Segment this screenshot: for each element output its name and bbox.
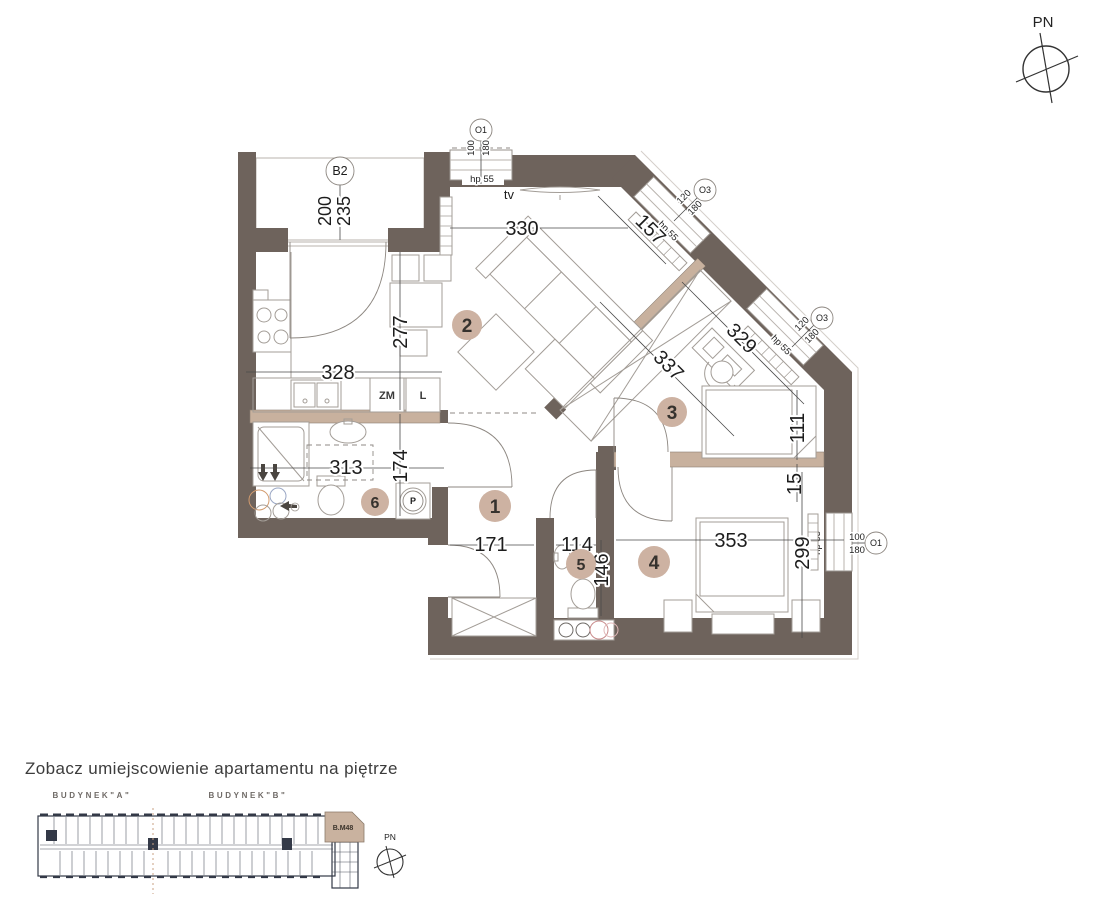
highlighted-unit: B.M48 [325,812,364,842]
floor-plan-canvas: O1 100 180 hp 55 O3 120 180 hp 55 O3 120… [0,0,1096,912]
svg-text:3: 3 [667,403,678,424]
compass-label: PN [1033,14,1054,31]
room-badge-3: 3 [657,397,687,427]
tv-label: tv [504,187,515,202]
tv: tv [504,187,600,202]
unit-label: B.M48 [333,825,354,832]
dim-kitchen-width: 328 [321,362,354,384]
hall-wardrobe [452,598,536,636]
stair-annex [332,842,358,888]
wc-meters [554,620,618,640]
dim-kitchen-depth: 277 [390,315,412,348]
elevator-core [46,830,57,841]
window-width: 100 [849,532,865,543]
dim-bath-width: 313 [329,457,362,479]
bal cony-depth: 235 [334,196,354,226]
dim-room3-bed-side: 111 [787,413,809,443]
window-sill-height: hp 55 [470,174,494,185]
window-o1-right: O1 100 180 hp 55 [812,513,887,571]
dim-room4-width: 353 [714,530,747,552]
footer: Zobacz umiejscowienie apartamentu na pię… [25,759,406,894]
svg-text:1: 1 [490,497,501,518]
fridge-label: L [420,390,427,402]
bath-toilet [317,476,345,515]
window-label: O1 [475,125,487,135]
radiator-living [440,197,452,255]
bed-bench [712,614,774,634]
mini-floor-plan: B.M48 [38,808,364,894]
room-badge-2: 2 [452,310,482,340]
sofa [450,216,652,418]
window-label: O3 [699,185,711,195]
room-badge-6: 6 [361,488,389,516]
window-o1-top: O1 100 180 hp 55 [450,119,512,185]
washing-machine: P [396,483,430,519]
dim-room4-depth: 299 [792,536,814,569]
balcony-width: 200 [315,196,335,226]
svg-text:4: 4 [649,553,660,574]
room-badge-5: 5 [566,549,596,579]
mini-compass-label: PN [384,832,396,842]
wc-door [550,470,596,518]
svg-text:5: 5 [577,557,586,574]
balcony-label: B2 200 235 [315,157,354,240]
balcony-door [290,242,386,338]
dim-room3-depth: 337 [649,346,688,385]
footer-heading: Zobacz umiejscowienie apartamentu na pię… [25,759,398,778]
room-badge-4: 4 [638,546,670,578]
dim-bath-depth: 174 [390,449,412,482]
bathroom-door [448,423,512,487]
window-height: 180 [849,545,865,556]
room4-door [618,467,672,521]
dishwasher-label: ZM [379,390,395,402]
window-label: O3 [816,313,828,323]
building-a-label: BUDYNEK"A" [53,791,132,800]
nightstand-right [792,600,820,632]
washer-label: P [410,496,416,506]
room-badge-1: 1 [479,490,511,522]
nightstand-left [664,600,692,632]
mini-compass: PN [374,832,406,878]
compass: PN [1016,14,1078,103]
desk-chair [711,361,733,383]
svg-text:6: 6 [371,495,380,512]
window-width: 100 [466,140,477,156]
svg-text:2: 2 [462,316,473,337]
stair-core [282,838,292,850]
window-height: 180 [481,140,492,156]
balcony-id: B2 [332,164,347,178]
dim-hall-width: 171 [474,534,507,556]
stove [253,300,291,352]
window-label: O1 [870,538,882,548]
dim-wall-gap: 15 [784,473,806,495]
building-b-label: BUDYNEK"B" [209,791,288,800]
dim-living-width: 330 [505,218,538,240]
kitchen-sink-cabinet [291,380,341,410]
